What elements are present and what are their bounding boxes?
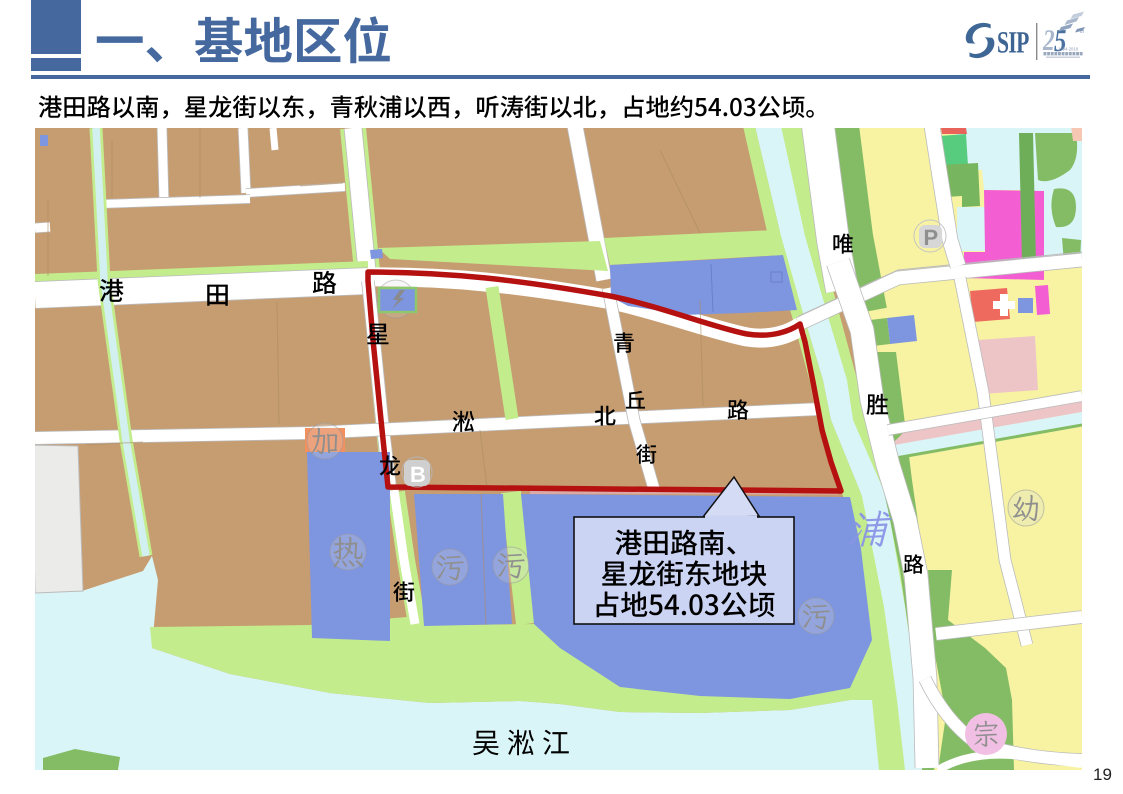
svg-text:1994-2019: 1994-2019 [1058,46,1079,51]
svg-text:19: 19 [1093,765,1112,784]
svg-text:th: th [1080,29,1084,35]
